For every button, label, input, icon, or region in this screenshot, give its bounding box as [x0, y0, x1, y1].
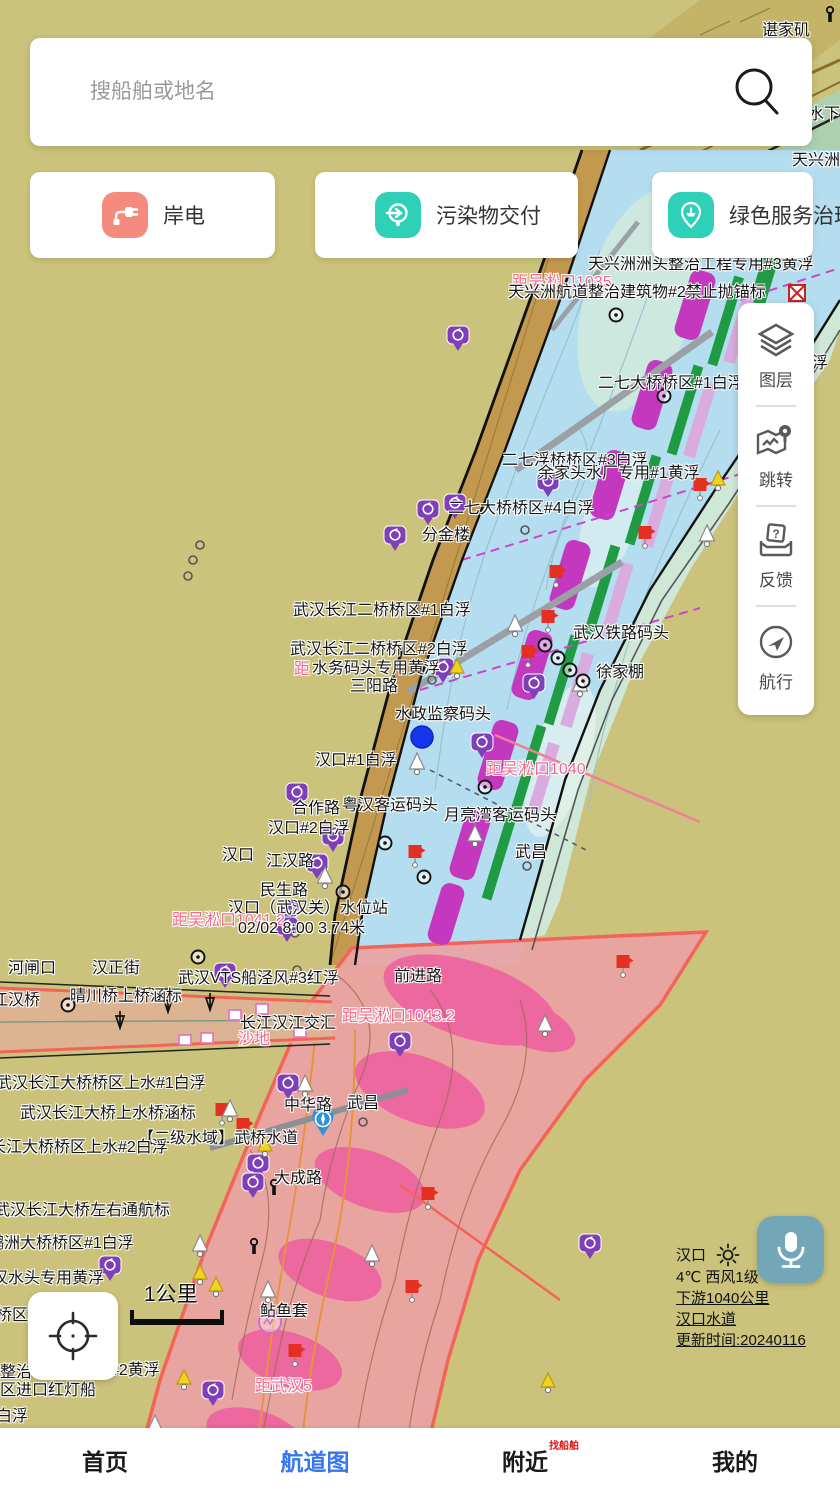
- layers-label: 图层: [759, 366, 793, 391]
- map-label: 沙地: [238, 1031, 270, 1049]
- map-label: 武汉长江大桥桥区上水#1白浮: [0, 1075, 206, 1093]
- map-label: 浮: [812, 355, 828, 373]
- downstream-distance[interactable]: 下游1040公里: [676, 1288, 806, 1309]
- temp-wind: 4℃ 西风1级: [676, 1267, 806, 1288]
- map-label: 白浮: [0, 1408, 28, 1426]
- map-label: 武汉长江大桥左右通航标: [0, 1202, 170, 1220]
- panel-divider: [756, 405, 796, 407]
- jump-label: 跳转: [759, 466, 793, 491]
- map-label: 鲇鱼套: [260, 1303, 308, 1321]
- map-label: 鹦洲大桥桥区#1白浮: [0, 1235, 134, 1253]
- map-label: 天兴洲航道整治建筑物#2禁止抛锚标: [508, 284, 766, 302]
- map-scale: 1公里: [130, 1278, 224, 1325]
- map-label: 分金楼: [422, 527, 470, 545]
- light-beacon-symbol-icon: [539, 639, 552, 652]
- map-label: 距: [294, 661, 310, 679]
- map-label: 汉水头专用黄浮: [0, 1270, 104, 1288]
- search-icon[interactable]: [730, 63, 786, 121]
- tab-chart[interactable]: 航道图: [210, 1428, 420, 1492]
- map-label: 合作路: [292, 800, 340, 818]
- tab-home[interactable]: 首页: [0, 1428, 210, 1492]
- green-service-label: 绿色服务治理: [729, 200, 840, 230]
- map-tool-panel: 图层 跳转 ? 反馈 航行: [738, 303, 814, 715]
- map-label: 江汉桥: [0, 992, 40, 1010]
- map-label: 武汉VTS船泾风#3红浮: [178, 970, 339, 988]
- tab-mine[interactable]: 我的: [630, 1428, 840, 1492]
- gps-position-dot-icon: [411, 726, 433, 748]
- map-label: 汉口#1白浮: [315, 752, 397, 770]
- light-beacon-symbol-icon: [337, 886, 350, 899]
- map-label: 晴川桥上桥涵标: [70, 988, 182, 1006]
- map-label: 水务码头专用黄浮: [312, 660, 440, 678]
- map-label: 汉口#2白浮: [268, 820, 350, 838]
- panel-divider: [756, 605, 796, 607]
- map-label: 距武汉5: [255, 1378, 312, 1396]
- map-label: 二七大桥桥区#1白浮: [598, 375, 744, 393]
- layers-icon: [756, 323, 796, 359]
- map-label: 汉口: [222, 847, 254, 865]
- map-label: 余家头水厂专用#1黄浮: [538, 465, 700, 483]
- feedback-button[interactable]: ? 反馈: [757, 519, 795, 601]
- search-bar: [30, 38, 812, 146]
- map-label: 前进路: [394, 968, 442, 986]
- light-beacon-symbol-icon: [552, 652, 565, 665]
- map-label: 区进口红灯船: [0, 1382, 96, 1400]
- map-label: 二七大桥桥区#4白浮: [448, 500, 594, 518]
- shore-power-button[interactable]: 岸电: [30, 172, 275, 258]
- ss-tag-symbol-icon: [256, 1004, 268, 1014]
- map-label: 武昌: [515, 844, 547, 862]
- map-label: 天兴洲洲头整治工程专用#3黄浮: [588, 256, 814, 274]
- sun-icon: [716, 1243, 740, 1267]
- pollutant-delivery-icon: [375, 192, 421, 238]
- map-label: 江汉路: [266, 853, 314, 871]
- map-label: 汉正街: [92, 960, 140, 978]
- map-label: 距吴淞口1040: [486, 761, 586, 779]
- light-beacon-symbol-icon: [610, 309, 623, 322]
- map-label: 武昌: [347, 1095, 379, 1113]
- green-service-button[interactable]: 绿色服务治理: [652, 172, 813, 258]
- map-label: 武汉长江二桥桥区#1白浮: [293, 602, 471, 620]
- waterway-name[interactable]: 汉口水道: [676, 1309, 806, 1330]
- scale-bar: [130, 1310, 224, 1325]
- panel-divider: [756, 505, 796, 507]
- map-label: 武汉长江二桥桥区#2白浮: [290, 641, 468, 659]
- light-beacon-symbol-icon: [379, 837, 392, 850]
- bottom-nav: 首页 航道图 附近 找船舶 我的: [0, 1428, 840, 1492]
- map-label: 月亮湾客运码头: [444, 807, 556, 825]
- map-label: 长江大桥桥区上水#2白浮: [0, 1139, 168, 1157]
- jump-map-pin-icon: [755, 423, 797, 459]
- map-label: 距吴淞口1043.2: [342, 1008, 455, 1026]
- ss-tag-symbol-icon: [179, 1035, 191, 1045]
- navigate-button[interactable]: 航行: [757, 619, 795, 703]
- waterway-info-panel: 汉口 4℃ 西风1级 下游1040公里 汉口水道 更新时间:20240116: [676, 1243, 806, 1351]
- light-beacon-symbol-icon: [577, 675, 590, 688]
- waterway-chart-app: 谌家矶水下天兴洲天兴洲洲头整治工程专用#3黄浮距吴淞口1035天兴洲航道整治建筑…: [0, 0, 840, 1492]
- ss-tag-symbol-icon: [201, 1033, 213, 1043]
- map-label: 民生路: [260, 882, 308, 900]
- station-name: 汉口: [676, 1245, 706, 1266]
- map-label: 三阳路: [350, 678, 398, 696]
- scale-label: 1公里: [144, 1278, 224, 1308]
- map-label: 中华路: [284, 1097, 332, 1115]
- map-label: 河闸口: [8, 960, 56, 978]
- map-label: 大成路: [274, 1170, 322, 1188]
- tab-nearby[interactable]: 附近 找船舶: [420, 1428, 630, 1492]
- pollutant-delivery-label: 污染物交付: [436, 200, 541, 230]
- light-beacon-symbol-icon: [418, 871, 431, 884]
- navigate-compass-icon: [757, 623, 795, 661]
- no-anchor-sign-icon: [789, 285, 805, 301]
- light-beacon-symbol-icon: [479, 781, 492, 794]
- map-label: 水下: [808, 106, 840, 124]
- shore-power-plug-icon: [102, 192, 148, 238]
- map-label: 武汉长江大桥上水桥涵标: [20, 1105, 196, 1123]
- layers-button[interactable]: 图层: [756, 319, 796, 401]
- svg-text:?: ?: [772, 527, 779, 541]
- feedback-label: 反馈: [759, 566, 793, 591]
- shore-power-label: 岸电: [163, 200, 205, 230]
- pollutant-delivery-button[interactable]: 污染物交付: [315, 172, 578, 258]
- navigate-label: 航行: [759, 668, 793, 693]
- crosshair-icon: [45, 1308, 101, 1364]
- map-label: 02/02 8:00 3.74米: [238, 920, 365, 938]
- map-label: 粤汉客运码头: [342, 797, 438, 815]
- feedback-inbox-icon: ?: [757, 523, 795, 559]
- update-time: 更新时间:20240116: [676, 1330, 806, 1351]
- search-input[interactable]: [56, 79, 730, 105]
- map-label: 水政监察码头: [395, 706, 491, 724]
- map-label: 天兴洲: [792, 152, 840, 170]
- find-ship-badge: 找船舶: [549, 1437, 579, 1452]
- map-label: 徐家棚: [596, 664, 644, 682]
- jump-button[interactable]: 跳转: [755, 419, 797, 501]
- map-label: 桥区: [0, 1307, 28, 1325]
- locate-me-button[interactable]: [28, 1292, 118, 1380]
- light-beacon-symbol-icon: [564, 664, 577, 677]
- light-beacon-symbol-icon: [192, 951, 205, 964]
- map-label: 武汉铁路码头: [573, 625, 669, 643]
- green-service-ship-icon: [668, 192, 714, 238]
